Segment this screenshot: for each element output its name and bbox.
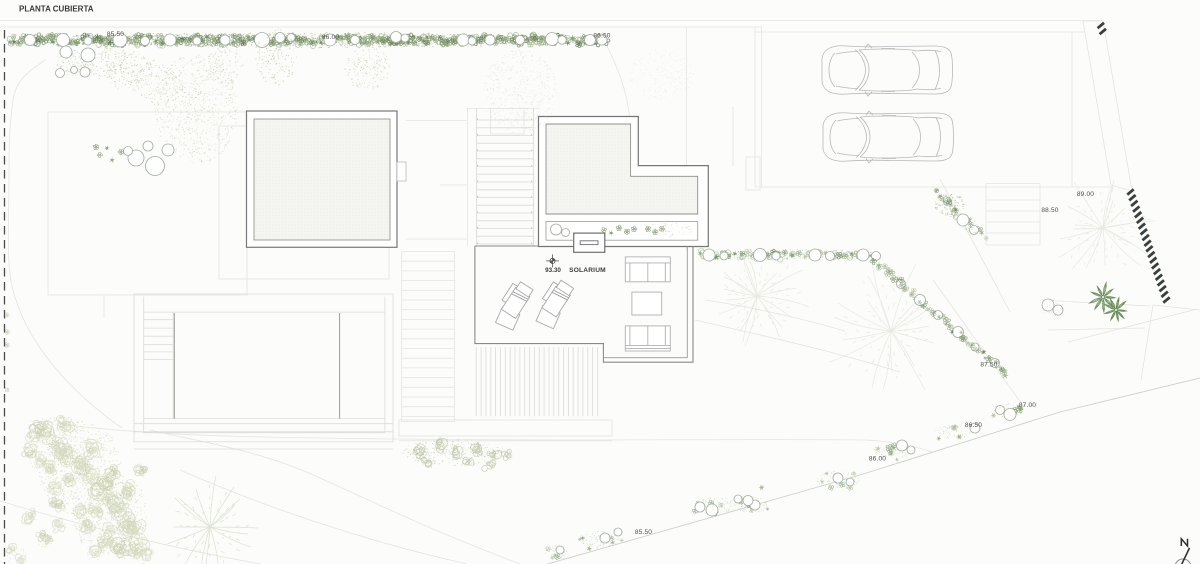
- svg-text:86.50: 86.50: [965, 422, 982, 429]
- svg-text:86.50: 86.50: [593, 33, 610, 40]
- svg-text:PLANTA CUBIERTA: PLANTA CUBIERTA: [19, 5, 94, 14]
- svg-text:85.50: 85.50: [635, 529, 652, 536]
- svg-text:85.50: 85.50: [107, 31, 124, 38]
- svg-text:SOLARIUM: SOLARIUM: [569, 267, 606, 274]
- svg-text:86.00: 86.00: [322, 34, 339, 41]
- svg-text:86.00: 86.00: [869, 456, 886, 463]
- svg-text:87.50: 87.50: [980, 362, 997, 369]
- svg-text:87.00: 87.00: [1019, 402, 1036, 409]
- svg-text:88.50: 88.50: [1041, 207, 1058, 214]
- svg-text:89.00: 89.00: [1077, 191, 1094, 198]
- svg-text:93.30: 93.30: [545, 267, 561, 274]
